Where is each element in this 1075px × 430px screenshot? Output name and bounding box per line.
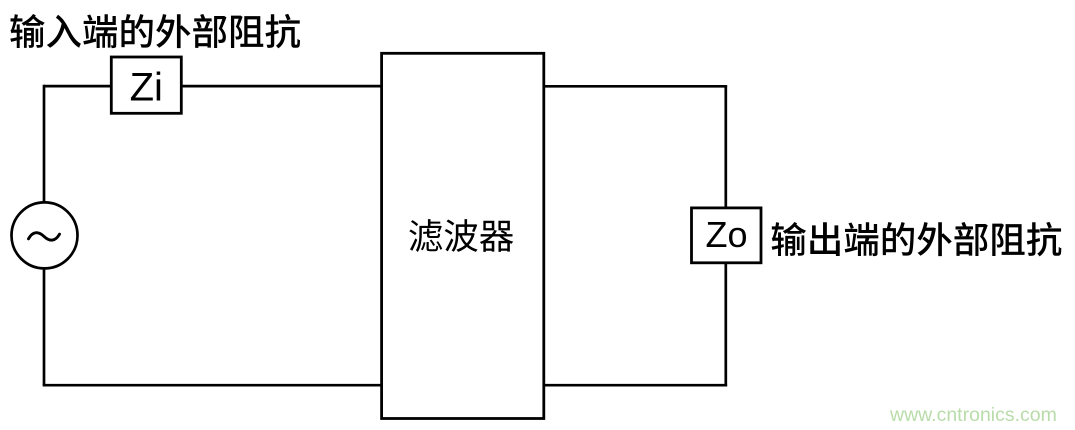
svg-text:Zi: Zi: [130, 66, 163, 110]
svg-text:Zo: Zo: [705, 214, 747, 255]
svg-text:www.cntronics.com: www.cntronics.com: [889, 404, 1057, 426]
